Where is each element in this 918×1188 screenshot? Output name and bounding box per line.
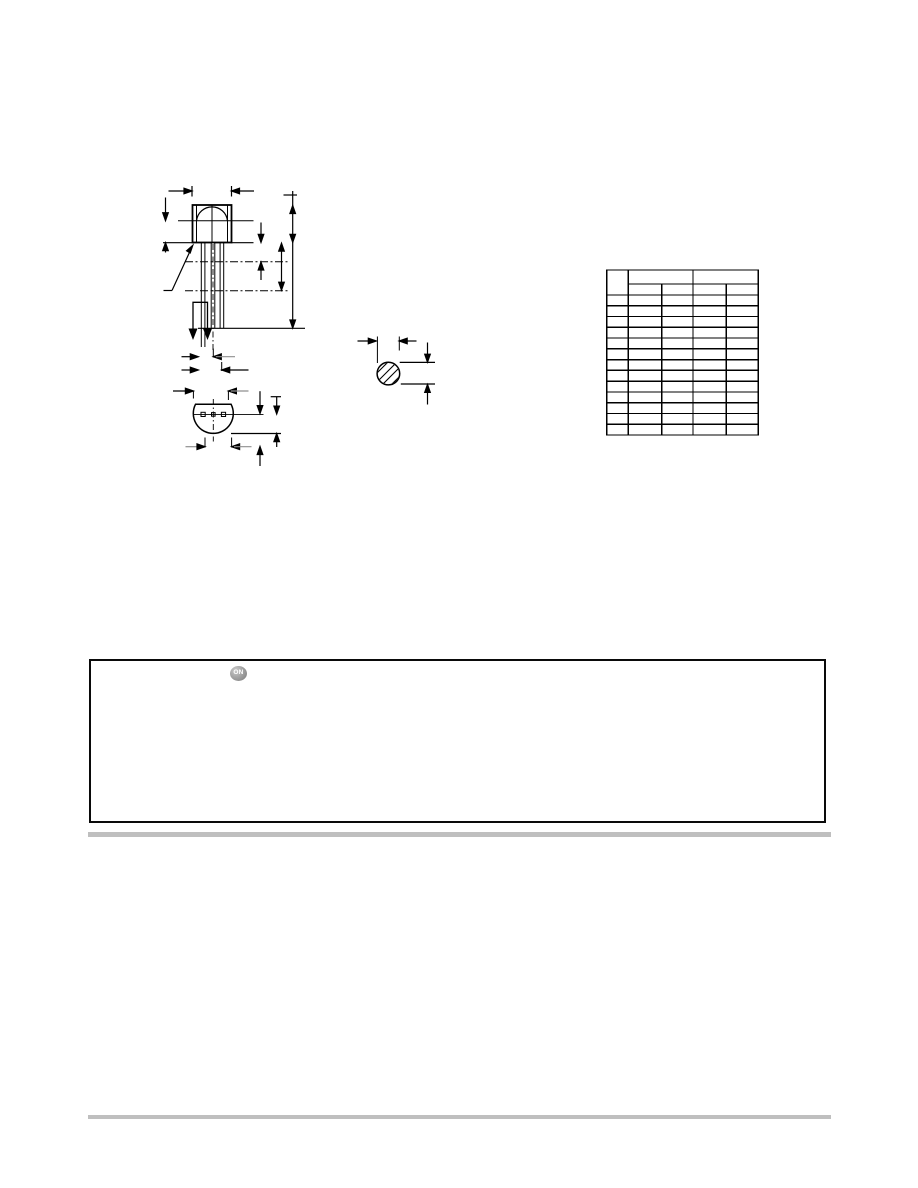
lead-width-dimensions (182, 349, 249, 373)
seating-plane-leader (172, 248, 192, 291)
section-cut-marker (189, 302, 213, 340)
front-view (163, 186, 305, 373)
dimension-table (607, 270, 759, 435)
package-outline-drawing (0, 0, 918, 600)
arrow-left (232, 188, 240, 194)
arrow-right (184, 188, 192, 194)
bottom-view (173, 388, 281, 466)
lead-section-view (358, 337, 436, 405)
section-divider-bar-top (88, 832, 831, 837)
section-divider-bar-bottom (88, 1115, 831, 1119)
on-semiconductor-logo: ON (230, 666, 247, 681)
section-arrow-down (203, 329, 212, 341)
hatch-pattern (370, 358, 409, 398)
notice-box: ON (89, 659, 826, 823)
datasheet-page: { "page": { "type": "datasheet-package-d… (0, 0, 918, 1188)
section-arrow-down (189, 329, 198, 341)
lead-cross-section (377, 362, 400, 385)
logo-text: ON (233, 670, 243, 677)
